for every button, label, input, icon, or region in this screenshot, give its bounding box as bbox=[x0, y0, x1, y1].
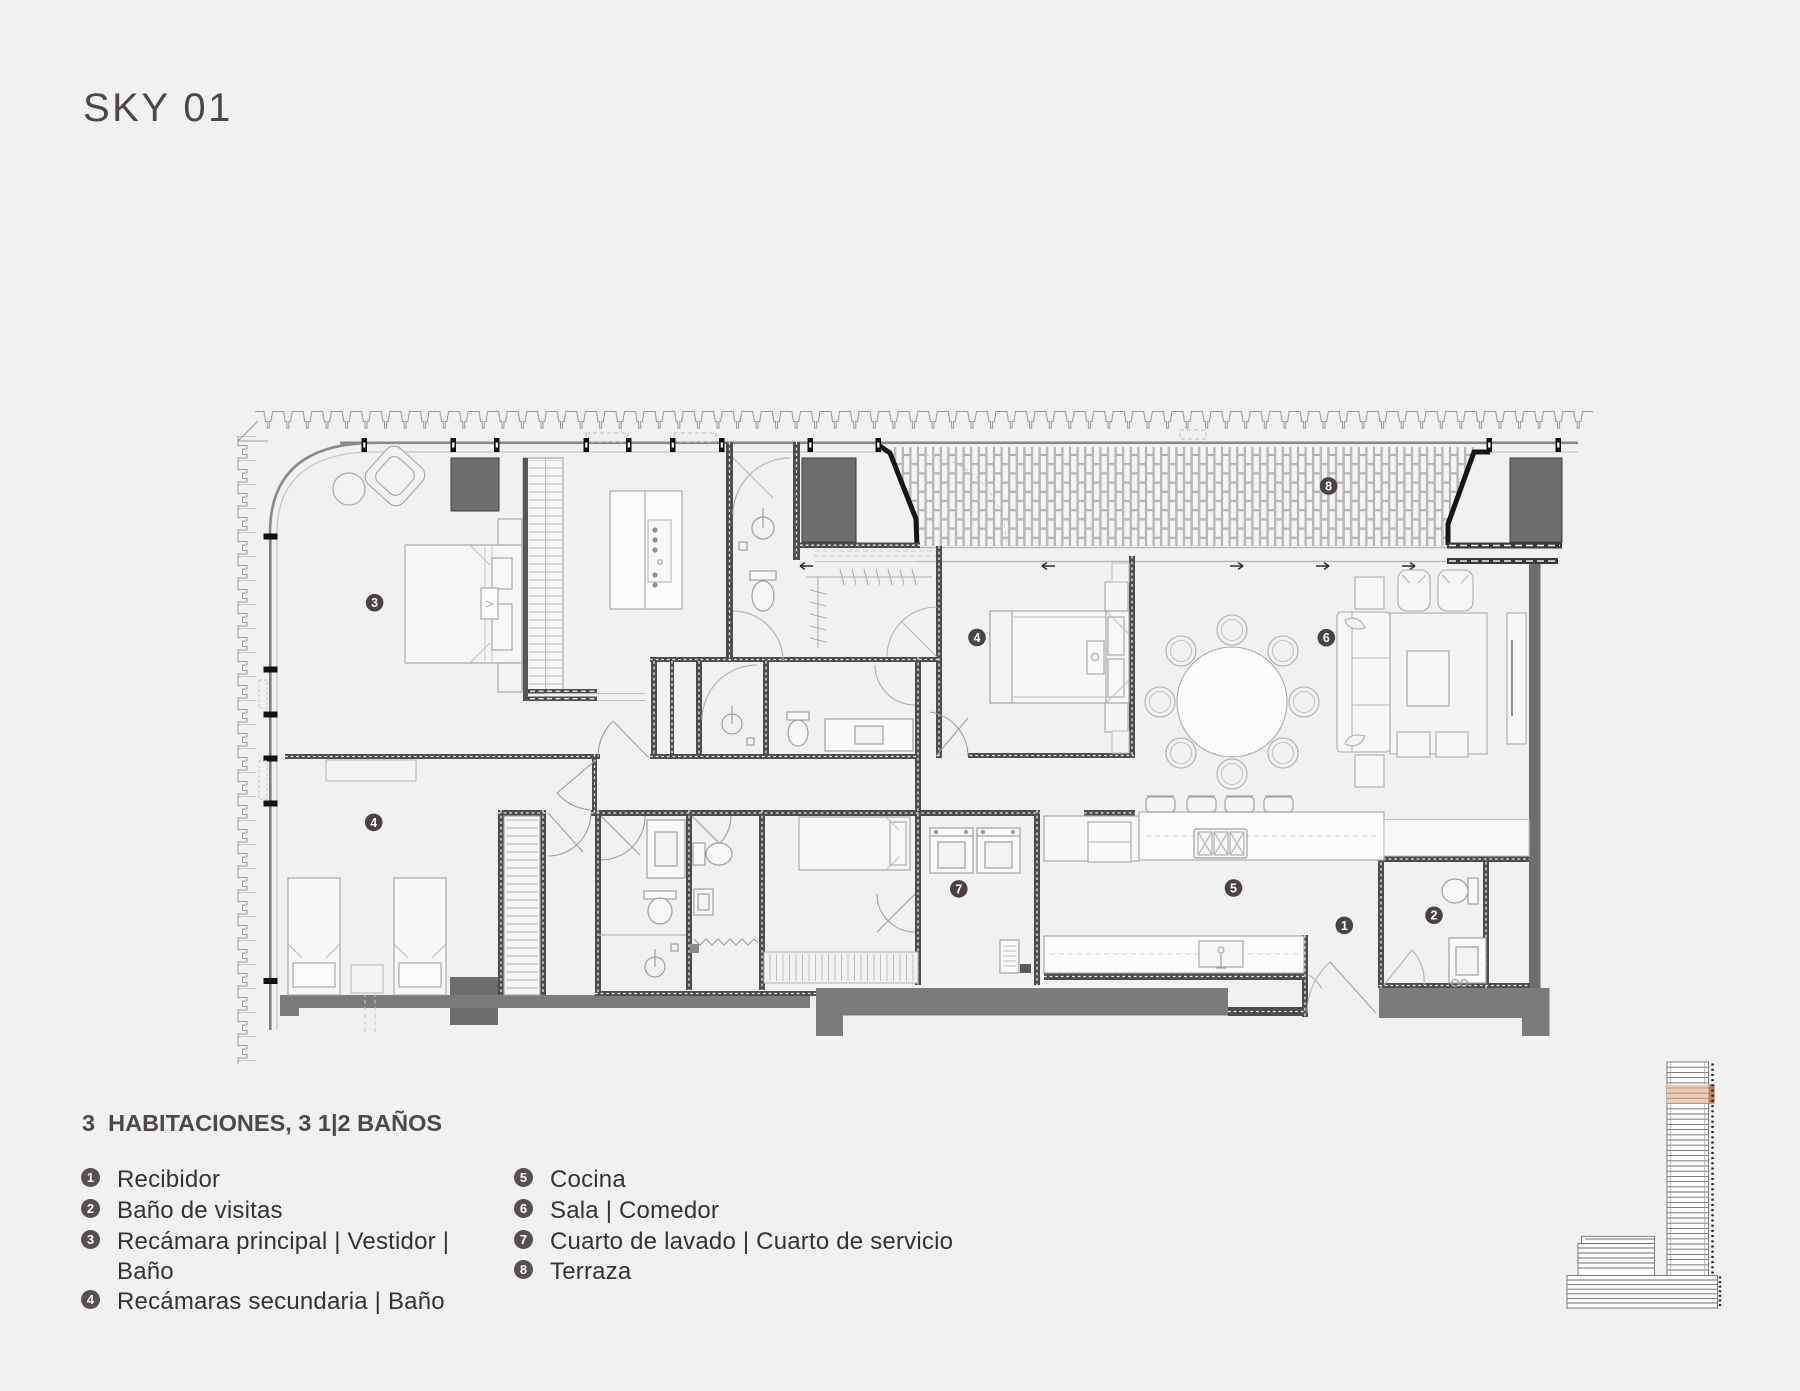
svg-text:2: 2 bbox=[1431, 909, 1438, 923]
svg-text:7: 7 bbox=[955, 882, 962, 896]
svg-text:1: 1 bbox=[1341, 919, 1348, 933]
svg-text:4: 4 bbox=[974, 631, 981, 645]
svg-text:6: 6 bbox=[1323, 631, 1330, 645]
svg-text:3: 3 bbox=[371, 596, 378, 610]
svg-text:4: 4 bbox=[370, 816, 377, 830]
svg-text:5: 5 bbox=[1230, 881, 1237, 895]
svg-text:8: 8 bbox=[1325, 479, 1332, 493]
